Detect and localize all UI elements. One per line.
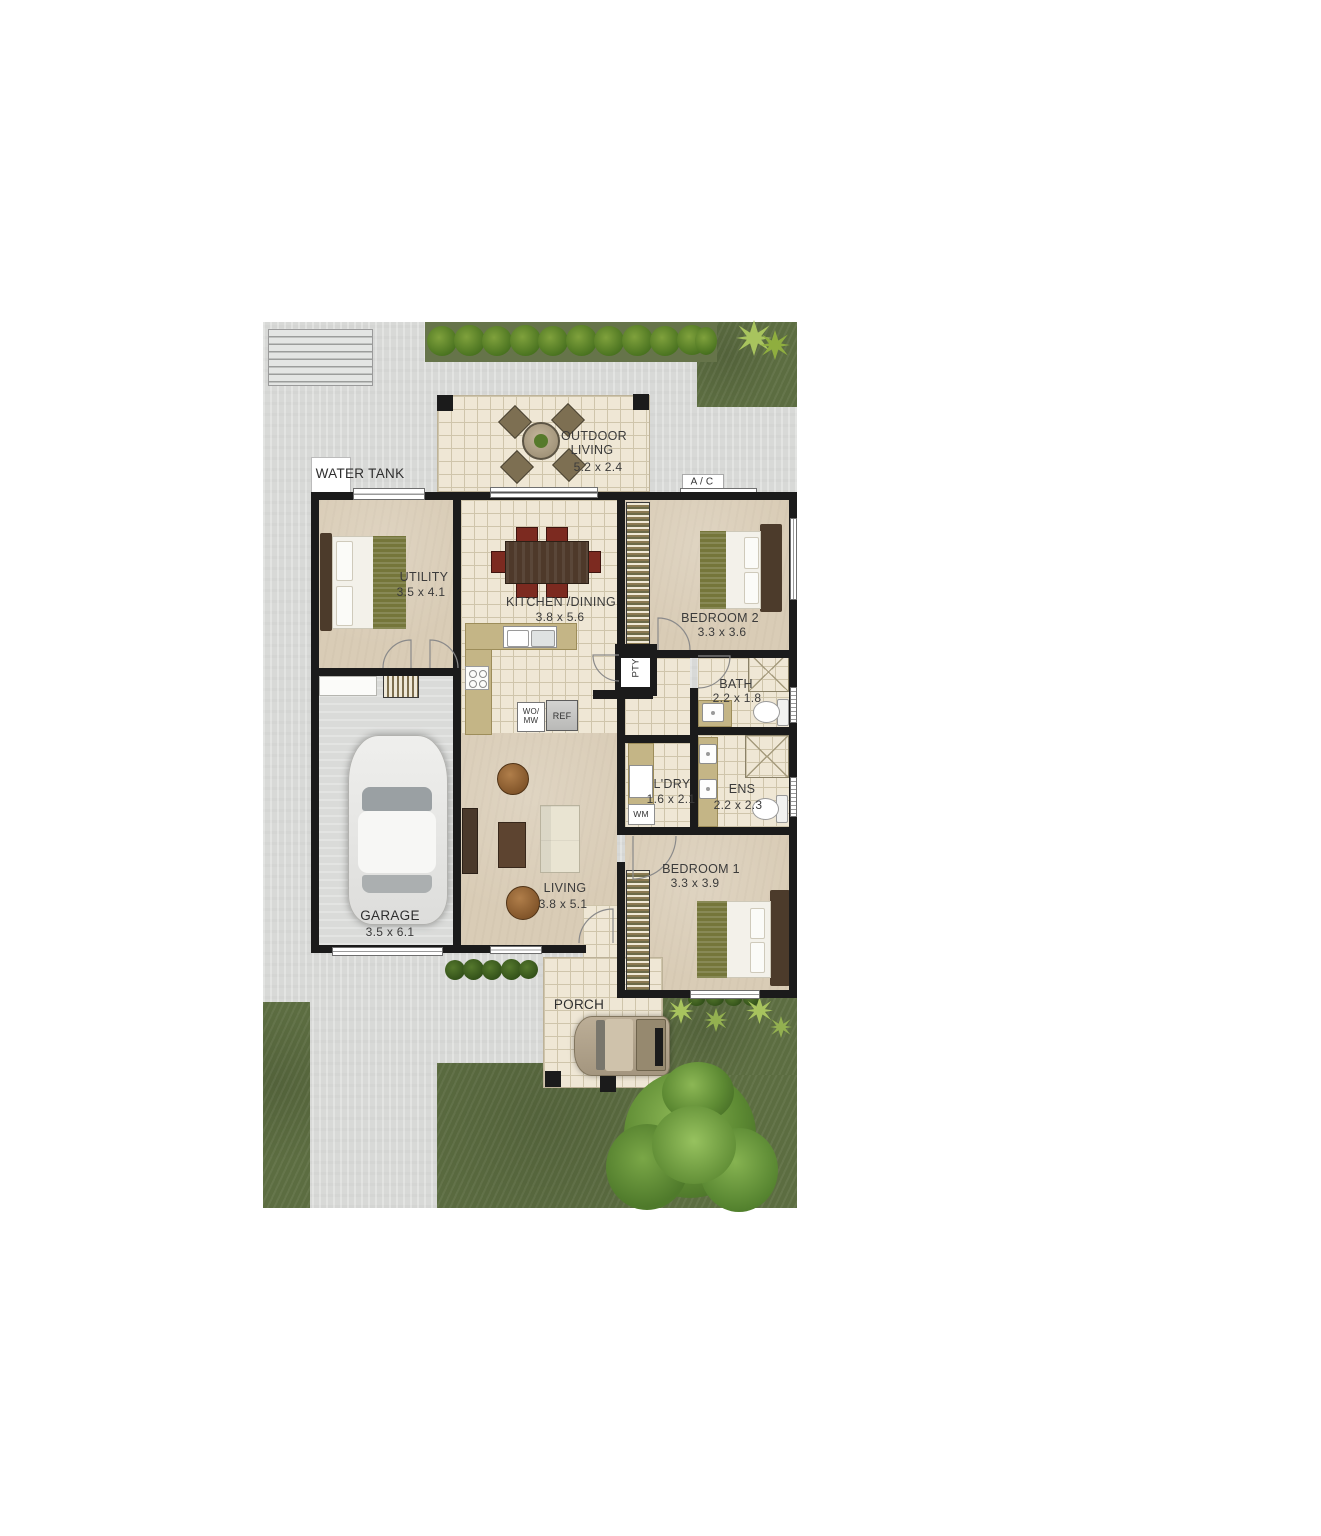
wall-utility-kitchen: [453, 500, 461, 676]
sofa: [540, 805, 580, 873]
wall-laundry-top: [625, 735, 690, 743]
hedge-bush: [650, 326, 680, 356]
entry-steps: [268, 329, 373, 386]
wall-kitchen-bedroom2: [617, 500, 625, 650]
garden-bush: [519, 960, 538, 979]
utility-label: UTILITY: [400, 570, 449, 584]
bedroom2-label: BEDROOM 2: [681, 611, 759, 625]
car-windshield: [362, 787, 432, 811]
garage-door: [332, 947, 443, 956]
hedge-bush: [427, 326, 457, 356]
bed-pillow: [750, 908, 765, 939]
fridge-label: REF: [553, 711, 572, 721]
hedge-strip: [425, 322, 717, 362]
hedge-bush: [594, 326, 624, 356]
pantry-label: PTY: [631, 658, 642, 677]
garden-bush: [445, 960, 465, 980]
outdoor-living-label-line2: LIVING: [571, 443, 614, 457]
wall-laundry-ens: [690, 735, 698, 835]
bed-headboard: [770, 890, 790, 986]
burner: [479, 670, 487, 678]
wall-hall-left: [617, 696, 625, 831]
laundry-label: L'DRY: [653, 777, 690, 791]
bed-blanket: [700, 531, 726, 609]
wall-garage-living: [453, 668, 461, 953]
table-plant: [534, 434, 548, 448]
bedroom2-dims: 3.3 x 3.6: [698, 625, 747, 639]
sink-bowl: [531, 630, 555, 647]
living-dims: 3.8 x 5.1: [539, 897, 588, 911]
bed-headboard: [320, 533, 332, 631]
bath-dims: 2.2 x 1.8: [713, 691, 762, 705]
wall-oven-line1: WO/: [523, 707, 540, 716]
kitchen-bench-left: [465, 649, 492, 735]
porch-label: PORCH: [554, 997, 604, 1012]
burner: [469, 680, 477, 688]
hedge-bush: [482, 326, 512, 356]
bed-pillow: [744, 537, 759, 569]
water-tank-label: WATER TANK: [316, 466, 405, 481]
bath-label: BATH: [719, 677, 753, 691]
ensuite-label: ENS: [729, 782, 756, 796]
bed-pillow: [336, 586, 353, 626]
porch-wall-stub: [655, 1028, 663, 1066]
wall-utility-bottom: [311, 668, 461, 676]
hedge-bush: [454, 325, 485, 356]
bedroom2-window: [790, 518, 797, 600]
wall-oven-label: WO/ MW: [523, 707, 540, 725]
burner: [469, 670, 477, 678]
kitchen-sink: [503, 626, 557, 648]
ensuite-dims: 2.2 x 2.3: [714, 798, 763, 812]
garage-car: [348, 735, 446, 923]
utility-window: [353, 488, 425, 500]
hedge-bush: [566, 325, 597, 356]
bed-pillow: [744, 572, 759, 604]
car-rear-window: [362, 875, 432, 893]
bath-shower: [748, 652, 789, 692]
bed-pillow: [336, 541, 353, 581]
hedge-bush: [510, 325, 541, 356]
bedroom1-label: BEDROOM 1: [662, 862, 740, 876]
cooktop: [465, 666, 489, 690]
wall-bedroom1-left: [617, 862, 625, 998]
tub-chair: [506, 886, 540, 920]
ensuite-window: [790, 777, 797, 817]
living-label: LIVING: [544, 881, 587, 895]
burner: [479, 680, 487, 688]
ensuite-shower: [745, 735, 789, 778]
kitchen-dining-dims: 3.8 x 5.6: [536, 610, 585, 624]
wall-bedroom2-bottom: [617, 650, 797, 658]
bed-headboard: [760, 524, 782, 612]
garden-bed: [445, 957, 538, 984]
utility-dims: 3.5 x 4.1: [397, 585, 446, 599]
coffee-table: [498, 822, 526, 868]
washing-machine-label: WM: [633, 809, 649, 819]
laundry-dims: 1.6 x 2.1: [647, 792, 696, 806]
patio-pillar: [633, 394, 649, 410]
wall-bedroom1-top: [617, 827, 797, 835]
ensuite-basin: [699, 779, 717, 799]
patio-stacker-door: [490, 487, 598, 498]
living-window: [490, 946, 542, 954]
kitchen-dining-label: KITCHEN /DINING: [506, 595, 616, 609]
bedroom2-robe: [626, 502, 650, 648]
bath-window: [790, 687, 797, 723]
outdoor-living-dims: 5.2 x 2.4: [574, 460, 623, 474]
car-roof: [358, 811, 436, 873]
tv-unit: [462, 808, 478, 874]
garage-label: GARAGE: [360, 908, 420, 923]
wall-left: [311, 492, 319, 953]
tree-canopy: [652, 1106, 736, 1184]
patio-pillar: [437, 395, 453, 411]
tree: [606, 1062, 778, 1220]
porch-pillar: [545, 1071, 561, 1087]
bed-blanket: [697, 901, 727, 978]
wall-bath-left-upper: [690, 650, 698, 658]
bed-pillow: [750, 942, 765, 973]
bath-basin: [702, 703, 724, 722]
tub-chair: [497, 763, 529, 795]
wall-bath-ens: [690, 727, 797, 735]
wall-oven-line2: MW: [524, 716, 539, 725]
bedroom1-dims: 3.3 x 3.9: [671, 876, 720, 890]
hedge-bush: [538, 326, 568, 356]
floor-plan: WATER TANK A / C WO/ MW REF: [0, 0, 1321, 1536]
garage-dims: 3.5 x 6.1: [366, 925, 415, 939]
car-windshield: [596, 1020, 605, 1070]
hedge-bush: [622, 325, 653, 356]
sink-bowl: [507, 630, 529, 647]
garage-landing: [319, 676, 377, 696]
garden-bush: [463, 959, 484, 980]
bedroom1-window: [690, 990, 760, 999]
ac-label: A / C: [691, 477, 714, 488]
ensuite-basin: [699, 744, 717, 764]
dining-table: [505, 541, 589, 584]
hedge-bush: [695, 327, 717, 355]
entry-floor: [583, 905, 617, 960]
outdoor-living-label-line1: OUTDOOR: [561, 429, 627, 443]
bedroom1-robe: [626, 870, 650, 992]
side-grass-left: [263, 1002, 310, 1208]
garden-bush: [482, 960, 502, 980]
